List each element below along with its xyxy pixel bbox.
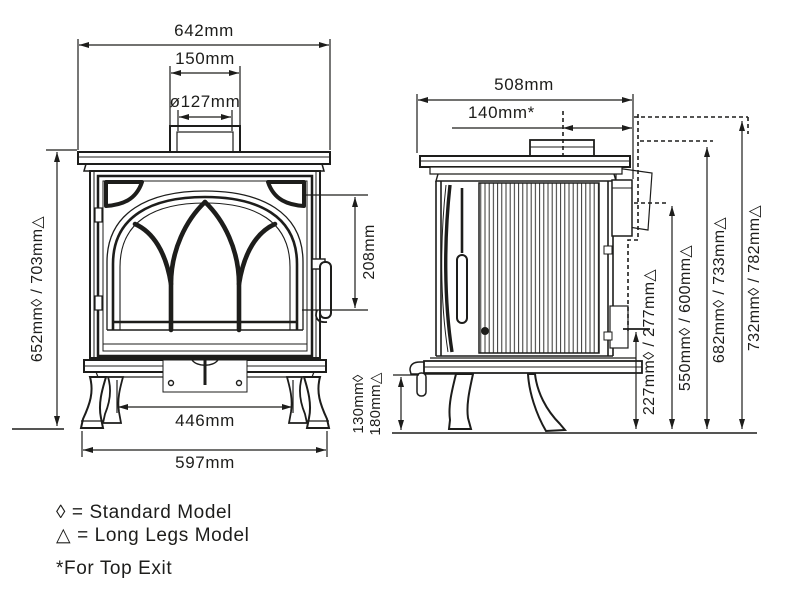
dim-label-flue-to-rear: 140mm* bbox=[468, 103, 535, 122]
flue-collar-inner bbox=[177, 132, 233, 152]
diagram-svg: 642mm 150mm ø127mm 652mm◊ / 703mm△ 208mm… bbox=[0, 0, 800, 600]
side-flue-collar bbox=[530, 140, 594, 156]
leg-rear-right bbox=[287, 377, 307, 423]
side-stove-drawing bbox=[392, 140, 757, 433]
dim-label-flue-centre-height: 550mm◊ / 600mm△ bbox=[677, 245, 694, 392]
dim-label-overall-height: 732mm◊ / 782mm△ bbox=[746, 205, 763, 352]
dim-overall-height: 732mm◊ / 782mm△ bbox=[742, 121, 763, 429]
dim-label-leg-span: 446mm bbox=[175, 411, 235, 430]
dim-label-clearance-long: 180mm△ bbox=[367, 372, 384, 436]
dim-label-depth: 508mm bbox=[494, 75, 554, 94]
dim-label-lower-outlet: 227mm◊ / 277mm△ bbox=[641, 269, 658, 416]
leg-front-left bbox=[81, 377, 106, 428]
side-leg-rear bbox=[528, 374, 565, 431]
dim-label-clearance-standard: 130mm◊ bbox=[350, 374, 367, 434]
dim-rear-lower-outlet-height: 227mm◊ / 277mm△ bbox=[623, 269, 658, 429]
front-view: 642mm 150mm ø127mm 652mm◊ / 703mm△ 208mm… bbox=[12, 21, 378, 472]
dim-label-height: 652mm◊ / 703mm△ bbox=[29, 216, 46, 363]
leg-rear-left bbox=[103, 377, 123, 423]
dim-label-glass-height: 208mm bbox=[361, 224, 378, 279]
rear-outlet-lower bbox=[610, 306, 628, 348]
dim-rear-flue-centre-height: 550mm◊ / 600mm△ bbox=[672, 206, 694, 429]
side-top-plate-lip bbox=[430, 167, 622, 174]
dim-flue-centre-to-rear: 140mm* bbox=[452, 103, 632, 128]
door-hinge-bottom bbox=[95, 296, 102, 310]
rear-dashed-vertical-lower bbox=[628, 240, 638, 331]
dim-underside-clearance: 130mm◊ 180mm△ bbox=[350, 372, 419, 436]
side-front-edge bbox=[436, 181, 441, 356]
dim-front-height: 652mm◊ / 703mm△ bbox=[12, 150, 77, 429]
side-door-knob bbox=[482, 328, 489, 335]
side-view: 508mm 140mm* 130mm◊ 180mm△ 227mm◊ / 277m… bbox=[350, 75, 763, 436]
dim-label-base-width: 597mm bbox=[175, 453, 235, 472]
dim-label-flue-diameter: ø127mm bbox=[170, 92, 241, 111]
legend-long-legs-model: △ = Long Legs Model bbox=[56, 525, 249, 546]
door-hinge-top bbox=[95, 208, 102, 222]
ribbed-side-panel bbox=[479, 183, 599, 353]
side-door-edge bbox=[446, 185, 452, 352]
side-door-handle bbox=[457, 255, 467, 323]
air-control-lever bbox=[417, 373, 426, 396]
dim-flue-collar-width: 150mm bbox=[170, 49, 240, 125]
side-top-plate-under bbox=[436, 174, 616, 181]
rear-latch-upper bbox=[604, 246, 612, 254]
dim-label-overall-width: 642mm bbox=[174, 21, 234, 40]
legend-top-exit-footnote: *For Top Exit bbox=[56, 558, 172, 579]
rear-latch-lower bbox=[604, 332, 612, 340]
dim-overall-base-width: 597mm bbox=[82, 431, 327, 472]
dim-label-exit-top-height: 682mm◊ / 733mm△ bbox=[711, 217, 728, 364]
leg-front-right bbox=[304, 377, 329, 428]
dim-rear-exit-top-height: 682mm◊ / 733mm△ bbox=[707, 147, 728, 429]
overall-height-dashed bbox=[634, 117, 748, 134]
top-plate bbox=[78, 152, 330, 164]
legend-standard-model: ◊ = Standard Model bbox=[56, 502, 232, 523]
top-plate-lip bbox=[84, 164, 324, 171]
side-leg-front bbox=[449, 374, 473, 429]
legend: ◊ = Standard Model △ = Long Legs Model *… bbox=[56, 502, 249, 579]
dim-label-collar-width: 150mm bbox=[175, 49, 235, 68]
stove-dimension-diagram: 642mm 150mm ø127mm 652mm◊ / 703mm△ 208mm… bbox=[0, 0, 800, 600]
